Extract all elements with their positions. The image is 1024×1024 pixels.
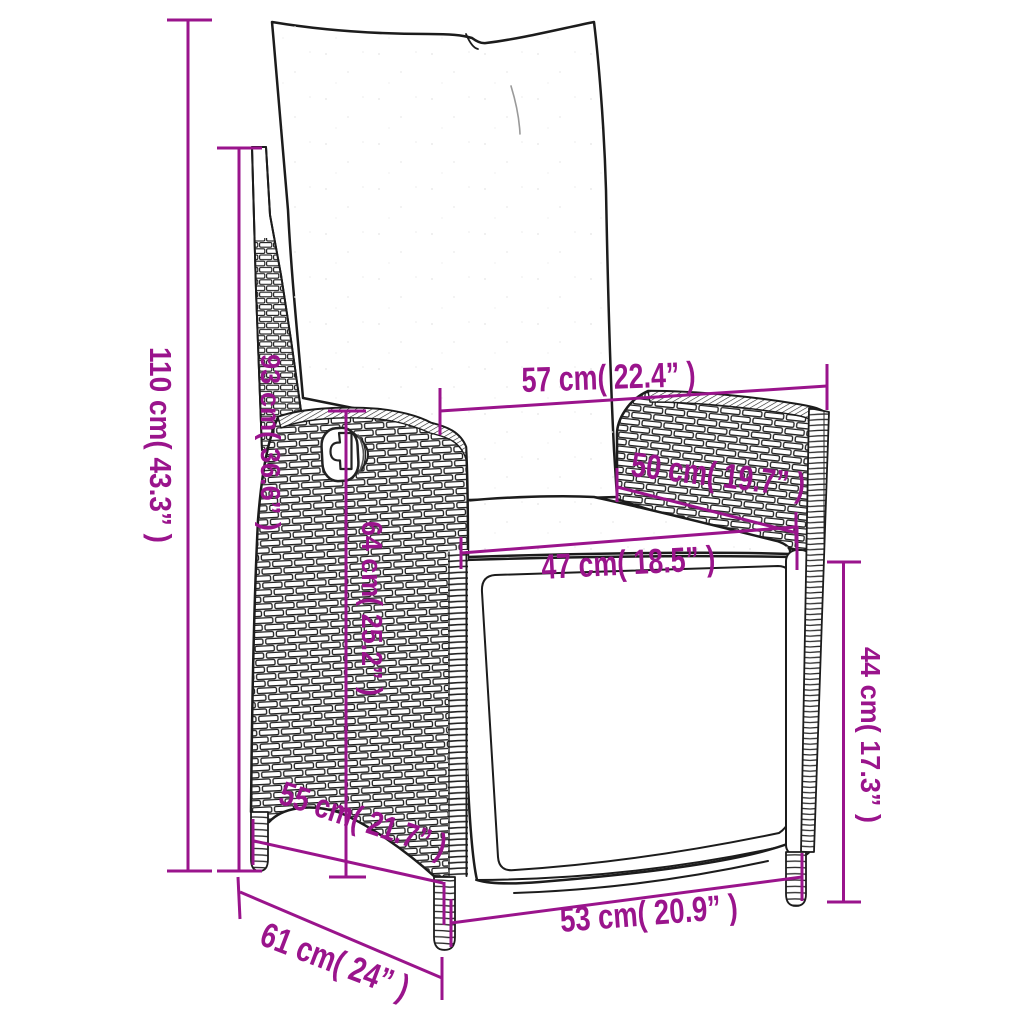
svg-text:44 cm( 17.3” ): 44 cm( 17.3” ) [855, 647, 886, 823]
svg-text:57 cm( 22.4” ): 57 cm( 22.4” ) [521, 355, 696, 400]
svg-text:93 cm( 36.6” ): 93 cm( 36.6” ) [255, 354, 286, 531]
svg-text:110 cm( 43.3” ): 110 cm( 43.3” ) [143, 347, 178, 543]
svg-text:64 cm( 25.2” ): 64 cm( 25.2” ) [355, 521, 387, 696]
